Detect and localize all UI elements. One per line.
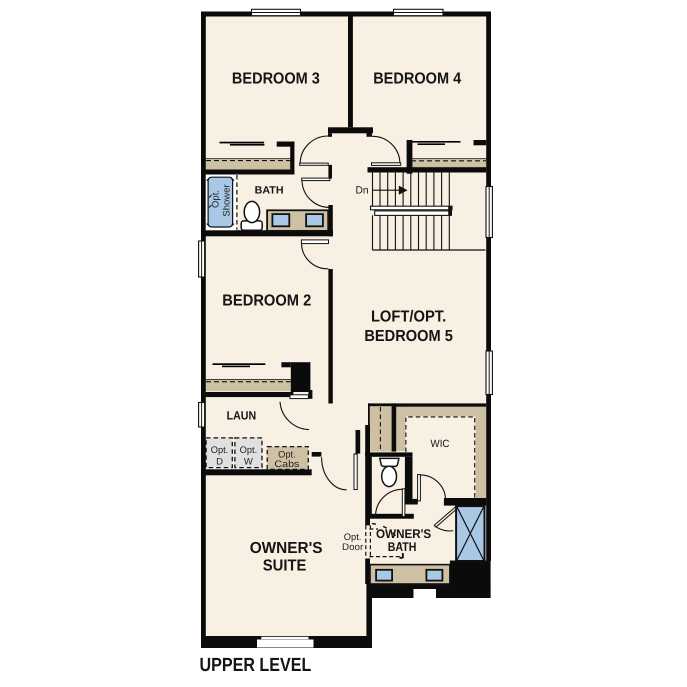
- svg-text:Door: Door: [342, 542, 363, 553]
- svg-text:Opt.: Opt.: [211, 445, 229, 456]
- svg-text:SUITE: SUITE: [263, 557, 307, 574]
- svg-text:Cabs: Cabs: [274, 459, 299, 470]
- svg-text:UPPER LEVEL: UPPER LEVEL: [200, 655, 312, 676]
- svg-text:BEDROOM 5: BEDROOM 5: [364, 328, 453, 345]
- svg-text:Opt.: Opt.: [211, 190, 222, 208]
- svg-text:LAUN: LAUN: [227, 408, 257, 422]
- svg-text:BEDROOM 3: BEDROOM 3: [232, 71, 320, 88]
- svg-text:BEDROOM 2: BEDROOM 2: [222, 292, 311, 309]
- svg-text:Opt.: Opt.: [240, 445, 258, 456]
- svg-text:Dn: Dn: [356, 185, 369, 197]
- svg-text:W: W: [244, 456, 253, 467]
- svg-text:D: D: [216, 456, 223, 467]
- svg-text:WIC: WIC: [431, 438, 450, 450]
- svg-text:LOFT/OPT.: LOFT/OPT.: [371, 309, 446, 326]
- svg-text:BATH: BATH: [388, 540, 417, 554]
- svg-text:OWNER'S: OWNER'S: [250, 540, 323, 557]
- svg-text:BEDROOM 4: BEDROOM 4: [373, 71, 461, 88]
- svg-text:BATH: BATH: [255, 185, 284, 197]
- svg-text:Shower: Shower: [221, 184, 232, 216]
